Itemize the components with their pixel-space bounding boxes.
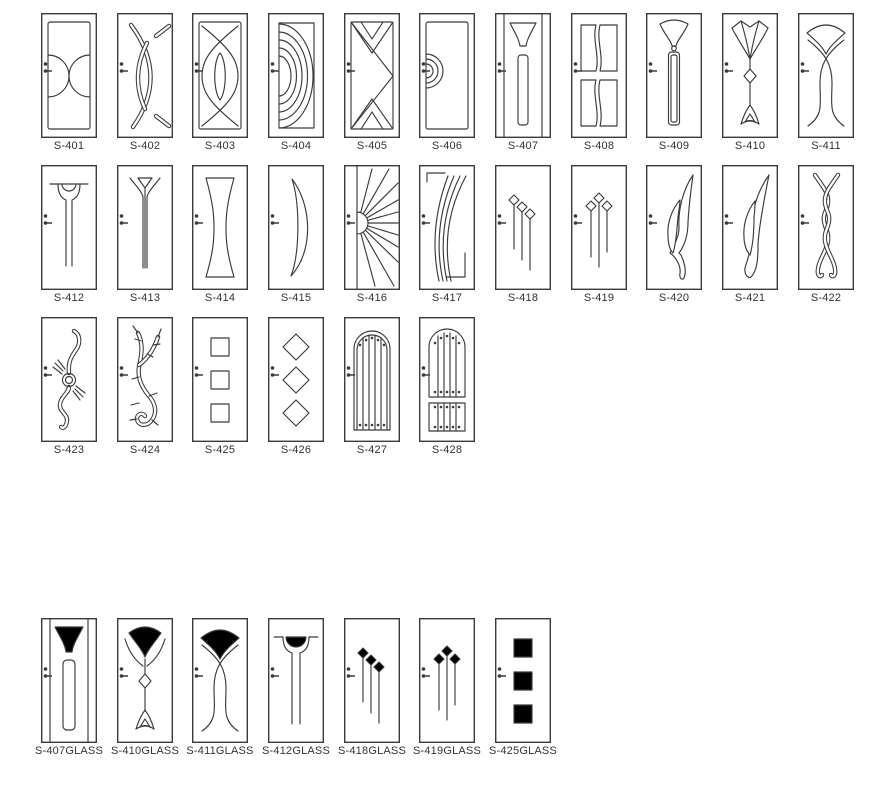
- door-s-412glass: [268, 618, 324, 743]
- g419-door-drawing: [419, 618, 475, 743]
- s425-door-drawing: [192, 317, 248, 442]
- door-label: S-411: [786, 140, 866, 152]
- door-label: S-425GLASS: [483, 745, 563, 757]
- door-s-428: [419, 317, 475, 442]
- door-label: S-415: [256, 292, 336, 304]
- s415-door-drawing: [268, 165, 324, 290]
- door-s-426: [268, 317, 324, 442]
- door-label: S-424: [105, 444, 185, 456]
- s412-door-drawing: [41, 165, 97, 290]
- door-s-424: [117, 317, 173, 442]
- door-label: S-428: [407, 444, 487, 456]
- door-s-411glass: [192, 618, 248, 743]
- door-s-415: [268, 165, 324, 290]
- door-label: S-405: [332, 140, 412, 152]
- s418-door-drawing: [495, 165, 551, 290]
- door-label: S-419: [559, 292, 639, 304]
- door-label: S-413: [105, 292, 185, 304]
- s416-door-drawing: [344, 165, 400, 290]
- g425-door-drawing: [495, 618, 551, 743]
- door-s-411: [798, 13, 854, 138]
- door-label: S-404: [256, 140, 336, 152]
- door-label: S-420: [634, 292, 714, 304]
- door-s-407glass: [41, 618, 97, 743]
- s414-door-drawing: [192, 165, 248, 290]
- door-label: S-403: [180, 140, 260, 152]
- door-s-406: [419, 13, 475, 138]
- s417-door-drawing: [419, 165, 475, 290]
- door-s-416: [344, 165, 400, 290]
- s424-door-drawing: [117, 317, 173, 442]
- s419-door-drawing: [571, 165, 627, 290]
- door-s-412: [41, 165, 97, 290]
- door-label: S-417: [407, 292, 487, 304]
- door-s-421: [722, 165, 778, 290]
- door-s-407: [495, 13, 551, 138]
- door-label: S-407GLASS: [29, 745, 109, 757]
- door-label: S-416: [332, 292, 412, 304]
- s408-door-drawing: [571, 13, 627, 138]
- s422-door-drawing: [798, 165, 854, 290]
- door-s-425glass: [495, 618, 551, 743]
- s423-door-drawing: [41, 317, 97, 442]
- s403-door-drawing: [192, 13, 248, 138]
- s427-door-drawing: [344, 317, 400, 442]
- s407-door-drawing: [495, 13, 551, 138]
- g407-door-drawing: [41, 618, 97, 743]
- door-catalog-sheet: S-401 S-402 S-403 S-404: [0, 0, 889, 800]
- s404-door-drawing: [268, 13, 324, 138]
- door-label: S-412GLASS: [256, 745, 336, 757]
- s402-door-drawing: [117, 13, 173, 138]
- door-s-418: [495, 165, 551, 290]
- door-s-425: [192, 317, 248, 442]
- door-label: S-401: [29, 140, 109, 152]
- door-label: S-423: [29, 444, 109, 456]
- door-s-427: [344, 317, 400, 442]
- g411-door-drawing: [192, 618, 248, 743]
- door-s-414: [192, 165, 248, 290]
- s410-door-drawing: [722, 13, 778, 138]
- door-s-410glass: [117, 618, 173, 743]
- door-s-403: [192, 13, 248, 138]
- door-s-402: [117, 13, 173, 138]
- g418-door-drawing: [344, 618, 400, 743]
- door-label: S-411GLASS: [180, 745, 260, 757]
- door-label: S-422: [786, 292, 866, 304]
- door-s-419: [571, 165, 627, 290]
- door-label: S-410: [710, 140, 790, 152]
- door-label: S-408: [559, 140, 639, 152]
- door-s-401: [41, 13, 97, 138]
- door-label: S-418GLASS: [332, 745, 412, 757]
- door-label: S-406: [407, 140, 487, 152]
- door-label: S-409: [634, 140, 714, 152]
- s405-door-drawing: [344, 13, 400, 138]
- door-label: S-419GLASS: [407, 745, 487, 757]
- door-label: S-414: [180, 292, 260, 304]
- s428-door-drawing: [419, 317, 475, 442]
- door-label: S-427: [332, 444, 412, 456]
- g412-door-drawing: [268, 618, 324, 743]
- door-label: S-421: [710, 292, 790, 304]
- door-s-423: [41, 317, 97, 442]
- door-label: S-402: [105, 140, 185, 152]
- s413-door-drawing: [117, 165, 173, 290]
- door-label: S-412: [29, 292, 109, 304]
- door-label: S-407: [483, 140, 563, 152]
- door-s-418glass: [344, 618, 400, 743]
- s411-door-drawing: [798, 13, 854, 138]
- s406-door-drawing: [419, 13, 475, 138]
- door-s-404: [268, 13, 324, 138]
- s401-door-drawing: [41, 13, 97, 138]
- door-label: S-418: [483, 292, 563, 304]
- door-label: S-426: [256, 444, 336, 456]
- s421-door-drawing: [722, 165, 778, 290]
- door-s-420: [646, 165, 702, 290]
- door-s-413: [117, 165, 173, 290]
- door-s-408: [571, 13, 627, 138]
- s409-door-drawing: [646, 13, 702, 138]
- door-s-422: [798, 165, 854, 290]
- door-label: S-410GLASS: [105, 745, 185, 757]
- door-s-417: [419, 165, 475, 290]
- door-label: S-425: [180, 444, 260, 456]
- s420-door-drawing: [646, 165, 702, 290]
- door-s-410: [722, 13, 778, 138]
- door-s-409: [646, 13, 702, 138]
- g410-door-drawing: [117, 618, 173, 743]
- door-s-405: [344, 13, 400, 138]
- s426-door-drawing: [268, 317, 324, 442]
- door-s-419glass: [419, 618, 475, 743]
